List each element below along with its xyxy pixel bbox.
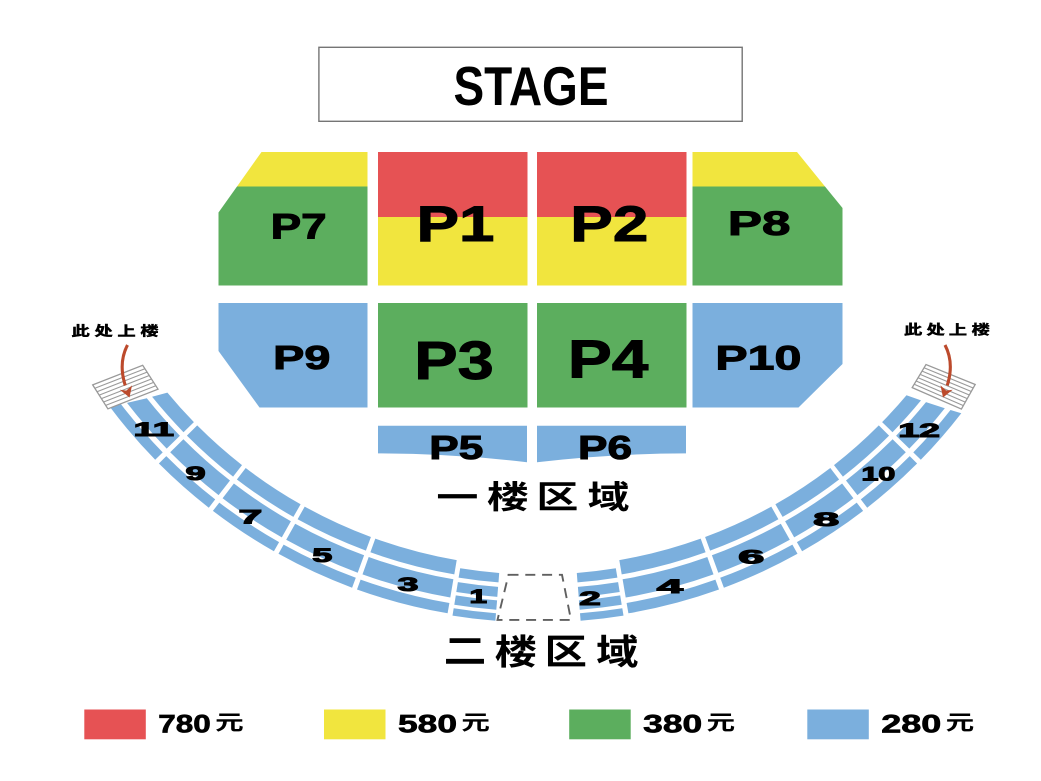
svg-text:P9: P9 <box>273 339 330 376</box>
svg-text:780: 780 <box>158 711 211 739</box>
svg-text:9: 9 <box>186 463 206 485</box>
svg-text:12: 12 <box>898 420 940 442</box>
svg-text:6: 6 <box>738 546 764 568</box>
svg-text:P1: P1 <box>417 196 495 252</box>
svg-text:P7: P7 <box>271 207 327 246</box>
svg-text:P5: P5 <box>429 429 483 466</box>
svg-text:580: 580 <box>398 711 457 739</box>
svg-text:11: 11 <box>134 419 174 441</box>
svg-text:P3: P3 <box>414 331 494 391</box>
svg-text:10: 10 <box>862 464 896 486</box>
svg-text:280: 280 <box>881 711 941 739</box>
svg-text:1: 1 <box>470 586 488 608</box>
svg-text:5: 5 <box>312 545 332 567</box>
svg-text:7: 7 <box>239 507 263 529</box>
svg-text:P8: P8 <box>728 205 791 243</box>
svg-text:STAGE: STAGE <box>454 56 609 117</box>
svg-text:2: 2 <box>579 588 601 610</box>
svg-text:3: 3 <box>398 574 419 596</box>
svg-text:P4: P4 <box>568 329 649 389</box>
svg-text:8: 8 <box>813 509 839 531</box>
svg-text:P2: P2 <box>570 196 648 252</box>
svg-text:P6: P6 <box>578 429 632 466</box>
svg-text:P10: P10 <box>715 339 801 377</box>
svg-text:380: 380 <box>643 711 702 739</box>
svg-text:4: 4 <box>657 576 683 598</box>
